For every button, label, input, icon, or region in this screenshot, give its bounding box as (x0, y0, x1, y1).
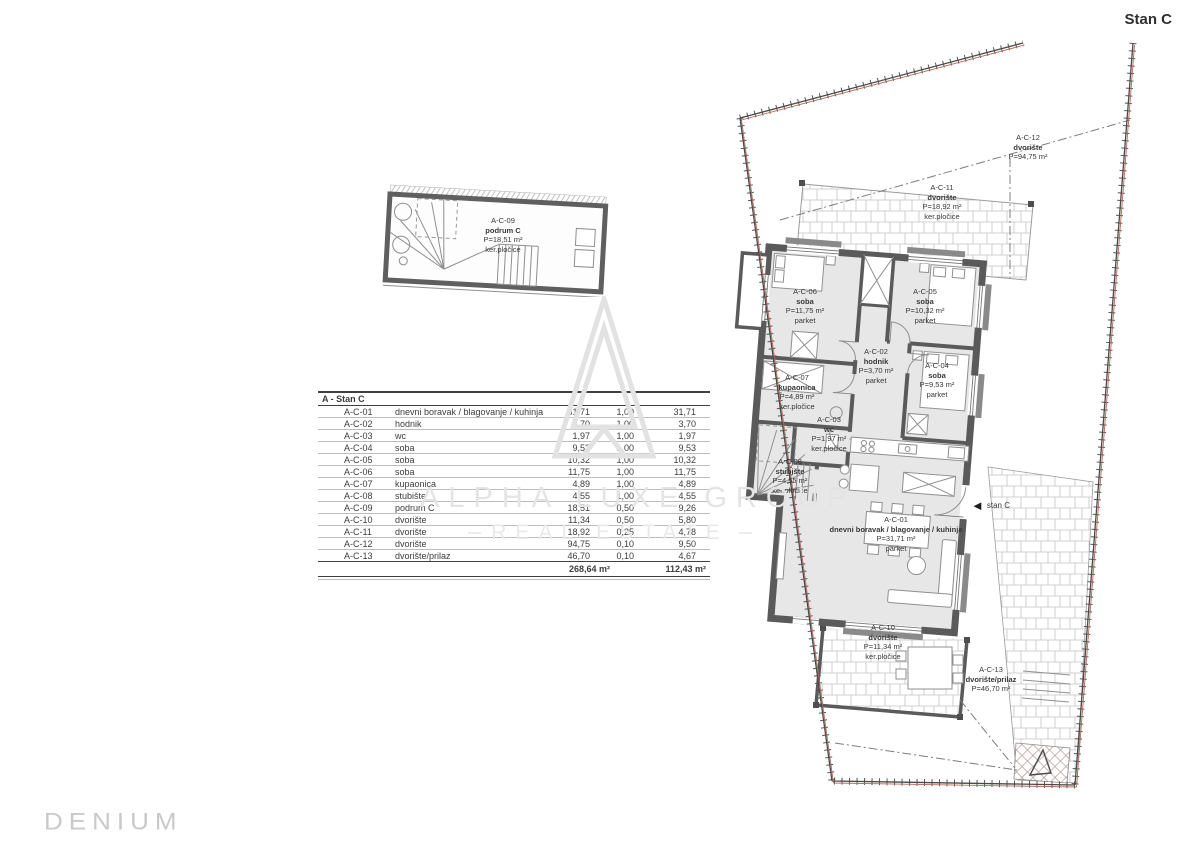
rfloor: parket (786, 316, 824, 326)
rfloor: parket (906, 316, 945, 326)
table-row-A-C-02: A-C-02hodnik3,701,003,70 (318, 418, 710, 430)
cell-area: 11,34 (538, 514, 590, 525)
cell-name: dvorište (395, 514, 538, 525)
total-reduced-area: 112,43 m² (665, 562, 706, 576)
rname: dnevni boravak / blagovanje / kuhinja (830, 525, 963, 535)
rarea: P=31,71 m² (830, 534, 963, 544)
rfloor: ker.pločice (864, 652, 902, 662)
rname: wc (811, 425, 846, 435)
cell-coef: 0,10 (590, 550, 634, 561)
table-row-A-C-07: A-C-07kupaonica4,891,004,89 (318, 478, 710, 490)
rcode: A-C-01 (830, 515, 963, 525)
area-table-rows: A-C-01dnevni boravak / blagovanje / kuhi… (318, 406, 710, 562)
table-row-A-C-11: A-C-11dvorište18,920,254,78 (318, 526, 710, 538)
cell-coef: 1,00 (590, 454, 634, 465)
cell-name: dvorište (395, 538, 538, 549)
cell-result: 9,26 (634, 502, 696, 513)
cell-name: podrum C (395, 502, 538, 513)
cell-name: dvorište (395, 526, 538, 537)
cell-coef: 0,50 (590, 502, 634, 513)
room-label-A-C-09: A-C-09podrum CP=18,51 m²ker.pločice (484, 216, 523, 254)
rcode: A-C-05 (906, 287, 945, 297)
room-label-A-C-11: A-C-11dvorišteP=18,92 m²ker.pločice (923, 183, 962, 221)
room-label-A-C-02: A-C-02hodnikP=3,70 m²parket (859, 347, 894, 385)
cell-area: 1,97 (538, 430, 590, 441)
rname: dvorište (923, 193, 962, 203)
cell-name: stubište (395, 490, 538, 501)
rname: dvorište/prilaz (966, 675, 1017, 685)
rfloor: ker.pločice (484, 245, 523, 255)
table-row-A-C-13: A-C-13dvorište/prilaz46,700,104,67 (318, 550, 710, 562)
rcode: A-C-07 (778, 373, 815, 383)
room-label-A-C-10: A-C-10dvorišteP=11,34 m²ker.pločice (864, 623, 902, 661)
cell-coef: 0,50 (590, 514, 634, 525)
table-row-A-C-01: A-C-01dnevni boravak / blagovanje / kuhi… (318, 406, 710, 418)
cell-name: dvorište/prilaz (395, 550, 538, 561)
cell-code: A-C-12 (318, 538, 395, 549)
cell-coef: 0,10 (590, 538, 634, 549)
room-label-A-C-12: A-C-12dvorišteP=94,75 m² (1009, 133, 1048, 162)
cell-name: soba (395, 442, 538, 453)
area-table-title: A - Stan C (318, 393, 710, 406)
cell-area: 4,89 (538, 478, 590, 489)
cell-code: A-C-01 (318, 406, 395, 417)
rname: kupaonica (778, 383, 815, 393)
cell-code: A-C-09 (318, 502, 395, 513)
rcode: A-C-06 (786, 287, 824, 297)
rfloor: ker.pločice (778, 402, 815, 412)
cell-coef: 1,00 (590, 430, 634, 441)
cell-area: 11,75 (538, 466, 590, 477)
main-floor-plan: A-C-12dvorišteP=94,75 m²A-C-11dvorišteP=… (725, 35, 1200, 848)
entrance-label: stan C (987, 501, 1010, 510)
room-label-A-C-06: A-C-06sobaP=11,75 m²parket (786, 287, 824, 325)
cell-area: 46,70 (538, 550, 590, 561)
rname: soba (920, 371, 955, 381)
rfloor: parket (830, 544, 963, 554)
rname: dvorište (864, 633, 902, 643)
cell-result: 11,75 (634, 466, 696, 477)
table-row-A-C-12: A-C-12dvorište94,750,109,50 (318, 538, 710, 550)
rfloor: parket (920, 390, 955, 400)
rarea: P=46,70 m² (966, 684, 1017, 694)
rarea: P=10,32 m² (906, 306, 945, 316)
cell-area: 10,32 (538, 454, 590, 465)
cell-coef: 1,00 (590, 442, 634, 453)
cell-result: 4,78 (634, 526, 696, 537)
cell-area: 3,70 (538, 418, 590, 429)
rarea: P=11,75 m² (786, 306, 824, 316)
rname: hodnik (859, 357, 894, 367)
cell-code: A-C-08 (318, 490, 395, 501)
cell-code: A-C-05 (318, 454, 395, 465)
cell-result: 9,50 (634, 538, 696, 549)
cell-result: 4,89 (634, 478, 696, 489)
cell-area: 94,75 (538, 538, 590, 549)
cell-result: 31,71 (634, 406, 696, 417)
cell-name: soba (395, 454, 538, 465)
cell-result: 3,70 (634, 418, 696, 429)
rarea: P=18,92 m² (923, 202, 962, 212)
rcode: A-C-12 (1009, 133, 1048, 143)
cell-name: hodnik (395, 418, 538, 429)
rname: stubište (772, 467, 807, 477)
cell-code: A-C-06 (318, 466, 395, 477)
table-row-A-C-08: A-C-08stubište4,551,004,55 (318, 490, 710, 502)
rfloor: ker.pločice (772, 486, 807, 496)
cell-result: 1,97 (634, 430, 696, 441)
room-label-A-C-07: A-C-07kupaonicaP=4,89 m²ker.pločice (778, 373, 815, 411)
floorplan-sheet: Stan C (0, 0, 1200, 848)
entrance-marker: ◄ stan C (971, 499, 1010, 512)
cell-coef: 1,00 (590, 478, 634, 489)
room-label-A-C-05: A-C-05sobaP=10,32 m²parket (906, 287, 945, 325)
total-area: 268,64 m² (569, 562, 610, 576)
rfloor: parket (859, 376, 894, 386)
room-label-A-C-01: A-C-01dnevni boravak / blagovanje / kuhi… (830, 515, 963, 553)
rcode: A-C-04 (920, 361, 955, 371)
page-title: Stan C (1124, 11, 1172, 28)
rarea: P=11,34 m² (864, 642, 902, 652)
cell-code: A-C-13 (318, 550, 395, 561)
rcode: A-C-08 (772, 457, 807, 467)
cell-coef: 1,00 (590, 406, 634, 417)
room-label-A-C-03: A-C-03wcP=1,97 m²ker.pločice (811, 415, 846, 453)
cell-coef: 1,00 (590, 490, 634, 501)
table-row-A-C-09: A-C-09podrum C18,510,509,26 (318, 502, 710, 514)
table-row-A-C-06: A-C-06soba11,751,0011,75 (318, 466, 710, 478)
rarea: P=94,75 m² (1009, 152, 1048, 162)
cell-code: A-C-10 (318, 514, 395, 525)
cell-code: A-C-03 (318, 430, 395, 441)
cell-code: A-C-11 (318, 526, 395, 537)
rarea: P=1,97 m² (811, 434, 846, 444)
cell-coef: 0,25 (590, 526, 634, 537)
entrance-arrow-icon: ◄ (971, 499, 984, 512)
cell-name: soba (395, 466, 538, 477)
rname: soba (786, 297, 824, 307)
rarea: P=4,55 m² (772, 476, 807, 486)
basement-plan: A-C-09podrum CP=18,51 m²ker.pločice (378, 172, 618, 297)
rarea: P=3,70 m² (859, 366, 894, 376)
cell-name: dnevni boravak / blagovanje / kuhinja (395, 406, 538, 417)
rcode: A-C-09 (484, 216, 523, 226)
room-label-A-C-04: A-C-04sobaP=9,53 m²parket (920, 361, 955, 399)
rcode: A-C-02 (859, 347, 894, 357)
room-label-A-C-08: A-C-08stubišteP=4,55 m²ker.pločice (772, 457, 807, 495)
rarea: P=4,89 m² (778, 392, 815, 402)
rcode: A-C-10 (864, 623, 902, 633)
cell-area: 18,92 (538, 526, 590, 537)
table-row-A-C-10: A-C-10dvorište11,340,505,80 (318, 514, 710, 526)
cell-result: 10,32 (634, 454, 696, 465)
rname: soba (906, 297, 945, 307)
rcode: A-C-13 (966, 665, 1017, 675)
cell-coef: 1,00 (590, 466, 634, 477)
area-table-totals: 268,64 m² 112,43 m² (318, 562, 710, 577)
rcode: A-C-11 (923, 183, 962, 193)
cell-code: A-C-07 (318, 478, 395, 489)
rfloor: ker.pločice (811, 444, 846, 454)
cell-area: 18,51 (538, 502, 590, 513)
rname: dvorište (1009, 143, 1048, 153)
cell-code: A-C-02 (318, 418, 395, 429)
table-row-A-C-04: A-C-04soba9,531,009,53 (318, 442, 710, 454)
cell-result: 9,53 (634, 442, 696, 453)
cell-result: 4,55 (634, 490, 696, 501)
room-label-A-C-13: A-C-13dvorište/prilazP=46,70 m² (966, 665, 1017, 694)
cell-coef: 1,00 (590, 418, 634, 429)
rcode: A-C-03 (811, 415, 846, 425)
plan-labels: A-C-12dvorišteP=94,75 m²A-C-11dvorišteP=… (725, 35, 1200, 848)
table-row-A-C-05: A-C-05soba10,321,0010,32 (318, 454, 710, 466)
rfloor: ker.pločice (923, 212, 962, 222)
cell-result: 5,80 (634, 514, 696, 525)
rarea: P=18,51 m² (484, 235, 523, 245)
rname: podrum C (484, 226, 523, 236)
cell-name: kupaonica (395, 478, 538, 489)
denium-logo: DENIUM (44, 807, 183, 836)
area-table: A - Stan C A-C-01dnevni boravak / blagov… (318, 391, 710, 580)
table-row-A-C-03: A-C-03wc1,971,001,97 (318, 430, 710, 442)
cell-result: 4,67 (634, 550, 696, 561)
cell-name: wc (395, 430, 538, 441)
cell-area: 4,55 (538, 490, 590, 501)
cell-area: 31,71 (538, 406, 590, 417)
cell-code: A-C-04 (318, 442, 395, 453)
rarea: P=9,53 m² (920, 380, 955, 390)
cell-area: 9,53 (538, 442, 590, 453)
